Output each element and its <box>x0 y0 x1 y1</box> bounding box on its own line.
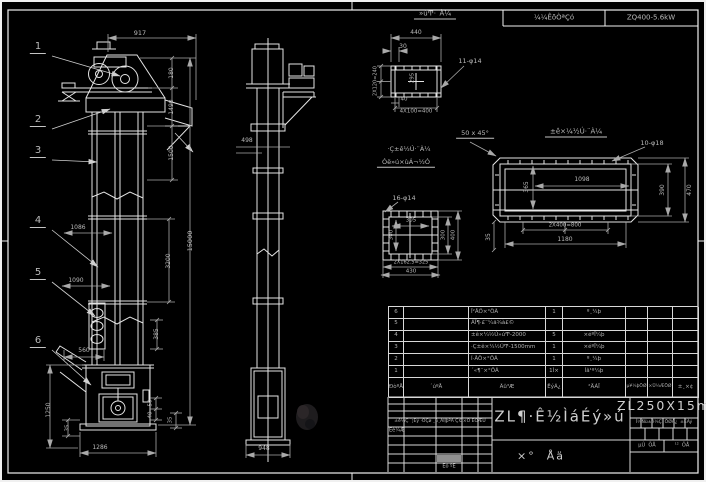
dim-385: 385 <box>154 328 160 339</box>
bom-cell-no: 1 <box>389 366 404 378</box>
bom-cell-material: ×éºÏ¼þ <box>563 342 626 354</box>
tb-sheet-first: µÚ ÕÅ <box>638 444 655 449</box>
dim-35-right: 35 <box>168 417 174 424</box>
balloon-6: 6 <box>30 336 46 348</box>
square-dim-300: 300 <box>389 230 395 241</box>
bom-header: µ¥¼þÖØ <box>626 378 648 398</box>
tb-right-headers: Í¼Ñù±ê¼Ç ÖØÁ¿ ±ÈÀý <box>636 421 692 426</box>
square-dim-430: 430 <box>406 269 417 275</box>
bom-cell-w1 <box>626 331 648 343</box>
tb-sheet-total: ¹² ÕÅ <box>675 444 690 449</box>
bom-cell-qty: 1 <box>546 342 563 354</box>
detail-a-title: »úͲ·¨À¼ <box>414 11 456 20</box>
bom-cell-code <box>404 366 469 378</box>
square-dim-400r: 400 <box>451 230 457 241</box>
bom-cell-w2 <box>648 354 673 366</box>
dim-1090: 1090 <box>68 278 83 284</box>
flange-dim-2x120: 2X120=240 <box>374 66 379 96</box>
balloon-1: 1 <box>30 42 46 54</box>
bom-header: ´úºÅ <box>404 378 469 398</box>
dim-1490: 1490 <box>169 99 175 114</box>
dim-40: 40 <box>148 412 154 419</box>
bom-cell-note <box>673 307 699 319</box>
bom-cell-name: ·Ç±ê×¼½ÚͲ-1500mm <box>469 342 546 354</box>
bom-cell-w2 <box>648 331 673 343</box>
square-title-2: Óë»ú×ùÁ¬½Ó <box>377 159 435 168</box>
balloon-5: 5 <box>30 268 46 280</box>
side-view <box>246 38 316 462</box>
dim-948: 948 <box>258 446 269 452</box>
bom-cell-no: 5 <box>389 319 404 331</box>
cad-drawing-sheet: 6Î²ÂÖ×°ÖÃ1º¸¼þ5ÁÏ¶·£¨¼ä¾à£©4±ê×¼½Ú»úͲ-20… <box>0 0 706 482</box>
bom-cell-no: 2 <box>389 354 404 366</box>
bom-header: Ãû³Æ <box>469 378 546 398</box>
bom-cell-note <box>673 366 699 378</box>
bom-cell-material <box>563 319 626 331</box>
bom-cell-no: 3 <box>389 342 404 354</box>
tb-revision-row: ±ê¼Ç ´¦Êý ·ÖÇø ¸ü¸ÄÎļþºÅ Ç©×Ö ÈÕÆÚ <box>394 420 485 425</box>
bom-cell-code <box>404 354 469 366</box>
detail-flange-plate <box>391 66 441 97</box>
stain-mark <box>296 404 318 430</box>
flange-dim-440: 440 <box>410 30 421 36</box>
bom-header: ÐòºÅ <box>389 378 404 398</box>
square-dim-305: 305 <box>406 218 417 224</box>
tb-approve: Éó ºË <box>442 465 455 470</box>
bom-cell-w2 <box>648 342 673 354</box>
dim-1500: 1500 <box>169 145 175 160</box>
flange-dim-40: 40 <box>401 97 408 103</box>
bom-cell-no: 4 <box>389 331 404 343</box>
bom-cell-note <box>673 354 699 366</box>
bom-header: ±¸×¢ <box>673 378 699 398</box>
bom-cell-code <box>404 319 469 331</box>
square-dim-2x162: 2X162.5=325 <box>394 261 429 266</box>
dim-15000: 15000 <box>187 231 194 252</box>
bom-cell-material: º¸¼þ <box>563 307 626 319</box>
square-title-1: ·Ç±ê½Ú·¨À¼ <box>387 146 430 153</box>
dim-3200: 3200 <box>166 253 172 268</box>
dim-1086: 1086 <box>70 225 85 231</box>
tb-design: Éè¼Æ <box>389 429 405 434</box>
balloon-4: 4 <box>30 216 46 228</box>
bom-cell-code <box>404 331 469 343</box>
flange-dim-30: 30 <box>399 44 407 50</box>
dim-1250: 1250 <box>46 402 52 417</box>
housing-dim-470: 470 <box>687 184 693 195</box>
housing-dim-390: 390 <box>660 184 666 195</box>
tb-title: ZL¶·Ê½ÌáÉý»ú <box>494 410 625 425</box>
dim-1286: 1286 <box>92 445 107 451</box>
housing-callout: 10-φ18 <box>640 140 663 147</box>
bom-header: ÊýÁ¿ <box>546 378 563 398</box>
dim-35-left: 35 <box>65 425 71 432</box>
header-cell-tech: ¼¼ÊõÒªÇó <box>534 15 574 22</box>
dim-50: 50 <box>148 400 154 407</box>
bom-cell-w2 <box>648 307 673 319</box>
bom-cell-no: 6 <box>389 307 404 319</box>
bom-cell-qty <box>546 319 563 331</box>
bom-cell-w1 <box>626 307 648 319</box>
bom-cell-note <box>673 342 699 354</box>
bom-header: ²ÄÁÏ <box>563 378 626 398</box>
balloon-3: 3 <box>30 146 46 158</box>
tb-model: ZL250X15m <box>617 400 706 413</box>
housing-dim-1098: 1098 <box>574 177 589 183</box>
bom-cell-material: ×éºÏ¼þ <box>563 331 626 343</box>
housing-dim-35: 35 <box>486 233 492 241</box>
dim-180: 180 <box>169 67 175 78</box>
bom-cell-qty: 1 <box>546 354 563 366</box>
housing-dim-1180: 1180 <box>557 237 572 243</box>
bom-cell-material: º¸¼þ <box>563 354 626 366</box>
bom-cell-name: ±ê×¼½Ú»úͲ-2000 <box>469 331 546 343</box>
bom-cell-note <box>673 319 699 331</box>
bom-cell-w2 <box>648 319 673 331</box>
tb-assembly: ×° Åä <box>517 451 565 462</box>
bom-cell-note <box>673 331 699 343</box>
housing-dim-2x400: 2X400=800 <box>549 223 582 229</box>
detail-housing-flange <box>493 158 638 222</box>
header-cell-spec: ZQ400-5.6kW <box>627 15 675 22</box>
balloon-2: 2 <box>30 115 46 127</box>
flange-dim-4x100: 4X100=400 <box>400 109 433 115</box>
square-dim-300r: 300 <box>441 230 447 241</box>
bom-cell-qty: 1Ì× <box>546 366 563 378</box>
chamfer-note: 50 x 45° <box>456 130 494 139</box>
bom-cell-w1 <box>626 366 648 378</box>
bom-cell-name: Í·ÂÖ×°ÖÃ <box>469 354 546 366</box>
dim-560: 560 <box>78 348 89 354</box>
bom-cell-name: ÁÏ¶·£¨¼ä¾à£© <box>469 319 546 331</box>
bom-cell-w2 <box>648 366 673 378</box>
bom-cell-qty: 1 <box>546 307 563 319</box>
bom-cell-qty: 5 <box>546 331 563 343</box>
flange-dim-295: 295 <box>410 73 416 84</box>
bom-table: 6Î²ÂÖ×°ÖÃ1º¸¼þ5ÁÏ¶·£¨¼ä¾à£©4±ê×¼½Ú»úͲ-20… <box>388 306 698 397</box>
housing-title: ±ê×¼½Ú·¨À¼ <box>545 129 607 138</box>
bom-cell-name: ´«¶¯×°ÖÃ <box>469 366 546 378</box>
dim-498: 498 <box>241 138 252 144</box>
flange-callout: 11-φ14 <box>458 58 481 65</box>
square-callout: 16-φ14 <box>392 195 415 202</box>
housing-dim-365: 365 <box>524 181 530 192</box>
bom-cell-w1 <box>626 319 648 331</box>
bom-header: ×Ü¼ÆÖØ <box>648 378 673 398</box>
bom-cell-code <box>404 342 469 354</box>
dim-917: 917 <box>134 30 146 37</box>
bom-cell-w1 <box>626 342 648 354</box>
bom-cell-material: Íâ¹º¼þ <box>563 366 626 378</box>
bom-cell-w1 <box>626 354 648 366</box>
bom-cell-name: Î²ÂÖ×°ÖÃ <box>469 307 546 319</box>
bom-cell-code <box>404 307 469 319</box>
